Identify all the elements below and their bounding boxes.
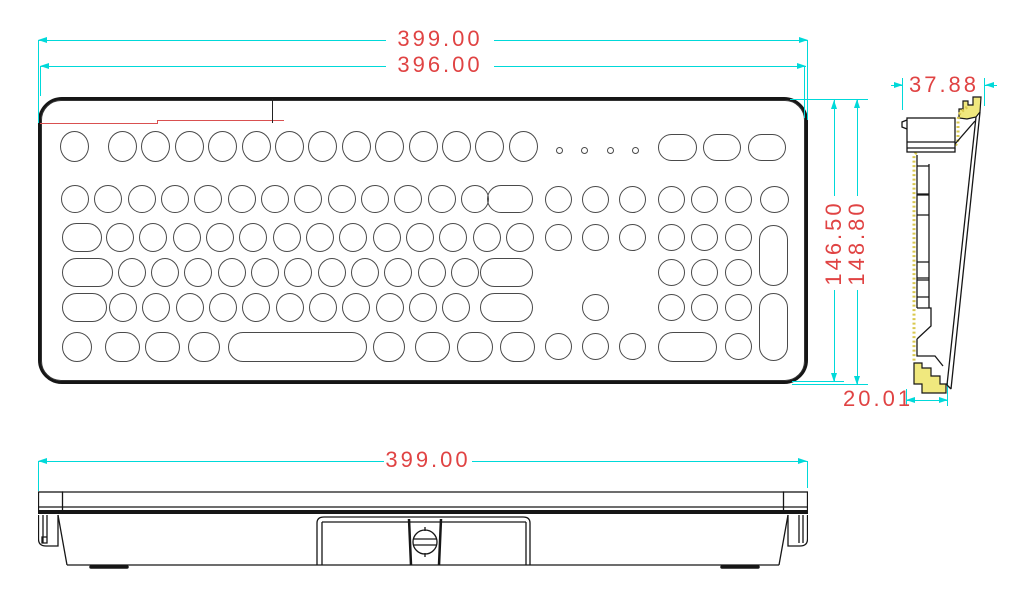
- front-left-bracket: [39, 515, 59, 546]
- key-outline: [691, 259, 718, 286]
- arrowhead: [854, 376, 860, 385]
- arrowhead: [854, 99, 860, 108]
- side-view: [893, 94, 993, 404]
- key-outline: [62, 223, 102, 252]
- section-line-right: [157, 120, 284, 121]
- key-outline: [375, 131, 404, 162]
- key-outline: [409, 293, 437, 322]
- key-outline: [145, 332, 180, 362]
- key-outline: [308, 131, 337, 162]
- key-outline: [473, 223, 501, 252]
- led-indicator-icon: [581, 147, 588, 154]
- key-outline: [619, 224, 646, 251]
- key-outline: [658, 332, 717, 362]
- key-outline: [691, 186, 718, 213]
- key-outline: [442, 131, 471, 162]
- led-indicator-icon: [632, 147, 639, 154]
- key-outline: [760, 186, 789, 213]
- dim-label-height-outer: 148.80: [846, 198, 868, 288]
- key-outline: [209, 293, 237, 322]
- top-view: [38, 97, 808, 384]
- dim-label-height-inner: 146.50: [823, 198, 845, 288]
- key-outline: [725, 333, 752, 360]
- key-outline: [506, 223, 534, 252]
- key-outline: [619, 186, 646, 213]
- front-view: [38, 486, 808, 574]
- key-outline: [439, 223, 467, 252]
- key-outline: [582, 224, 609, 251]
- key-outline: [759, 225, 788, 286]
- key-outline: [294, 185, 322, 213]
- key-outline: [309, 293, 337, 322]
- key-outline: [582, 333, 609, 360]
- key-outline: [418, 258, 446, 287]
- key-outline: [251, 258, 279, 287]
- key-outline: [228, 185, 256, 213]
- witness-line: [807, 40, 808, 120]
- front-top-edges: [38, 492, 808, 507]
- key-outline: [658, 294, 685, 321]
- front-left-cap: [39, 492, 63, 513]
- key-outline: [457, 332, 493, 362]
- arrowhead: [797, 63, 806, 69]
- key-outline: [184, 258, 212, 287]
- arrowhead: [798, 458, 807, 464]
- arrowhead: [38, 37, 47, 43]
- key-outline: [142, 293, 170, 322]
- key-outline: [128, 185, 156, 213]
- key-outline: [480, 293, 533, 322]
- key-outline: [582, 294, 609, 321]
- arrowhead: [985, 82, 994, 88]
- key-layer: [38, 97, 808, 384]
- key-outline: [284, 258, 312, 287]
- key-outline: [342, 293, 370, 322]
- key-outline: [582, 186, 609, 213]
- key-outline: [141, 131, 170, 162]
- gasket-top-hook: [959, 97, 981, 119]
- key-outline: [151, 258, 179, 287]
- key-outline: [415, 332, 450, 362]
- screw-slot: [413, 527, 436, 557]
- arrowhead: [40, 63, 49, 69]
- key-outline: [242, 131, 271, 162]
- key-outline: [318, 258, 346, 287]
- key-outline: [242, 293, 270, 322]
- key-outline: [428, 185, 456, 213]
- key-outline: [658, 259, 685, 286]
- key-outline: [361, 185, 389, 213]
- key-outline: [228, 332, 367, 362]
- witness-line: [804, 66, 805, 118]
- key-outline: [139, 223, 167, 252]
- key-outline: [545, 333, 572, 360]
- key-outline: [475, 131, 504, 162]
- key-outline: [173, 223, 201, 252]
- key-outline: [239, 223, 267, 252]
- key-outline: [339, 223, 367, 252]
- key-outline: [276, 293, 304, 322]
- dimension-line: [857, 290, 858, 385]
- screw-head-icon: [413, 530, 437, 554]
- key-outline: [60, 131, 89, 162]
- front-right-bracket: [788, 515, 808, 546]
- key-outline: [725, 259, 752, 286]
- key-outline: [409, 131, 438, 162]
- dimension-line: [834, 290, 835, 382]
- key-outline: [545, 186, 572, 213]
- drawing-canvas: 399.00 396.00 146.50 148.80 37.88 20.01 …: [0, 0, 1021, 609]
- front-right-cap: [784, 492, 808, 513]
- dimension-line: [472, 461, 808, 462]
- key-outline: [328, 185, 356, 213]
- key-outline: [194, 185, 222, 213]
- key-outline: [500, 332, 535, 362]
- dimension-line: [834, 100, 835, 196]
- key-outline: [62, 258, 113, 287]
- witness-line: [38, 40, 39, 123]
- key-outline: [658, 224, 685, 251]
- arrowhead: [38, 458, 47, 464]
- key-outline: [725, 294, 752, 321]
- led-indicator-icon: [556, 147, 563, 154]
- key-outline: [109, 293, 137, 322]
- key-outline: [545, 224, 572, 251]
- witness-line: [40, 66, 41, 96]
- key-outline: [62, 293, 107, 322]
- key-outline: [62, 332, 92, 362]
- key-outline: [703, 134, 741, 161]
- key-outline: [394, 185, 422, 213]
- key-outline: [373, 332, 405, 362]
- section-line-left: [40, 123, 157, 124]
- key-outline: [105, 332, 140, 362]
- key-outline: [306, 223, 334, 252]
- dimension-line: [40, 66, 386, 67]
- key-outline: [451, 258, 479, 287]
- key-outline: [461, 185, 489, 213]
- key-outline: [206, 223, 234, 252]
- side-outer-edge: [947, 112, 980, 389]
- key-outline: [480, 258, 533, 287]
- key-outline: [619, 333, 646, 360]
- dim-label-top-inner-width: 396.00: [386, 54, 494, 76]
- arrowhead: [831, 100, 837, 109]
- key-outline: [273, 223, 301, 252]
- dimension-line: [494, 66, 806, 67]
- led-indicator-icon: [607, 147, 614, 154]
- key-outline: [406, 223, 434, 252]
- dim-label-top-outer-width: 399.00: [386, 28, 494, 50]
- key-outline: [176, 293, 204, 322]
- key-outline: [175, 131, 204, 162]
- key-outline: [509, 131, 538, 162]
- arrowhead: [831, 373, 837, 382]
- key-outline: [342, 131, 371, 162]
- side-top-block: [907, 118, 955, 152]
- key-outline: [94, 185, 122, 213]
- front-bezel-line: [38, 510, 808, 514]
- dimension-line: [38, 40, 386, 41]
- dimension-line: [857, 99, 858, 196]
- key-outline: [725, 186, 752, 213]
- key-outline: [748, 134, 786, 161]
- key-outline: [106, 223, 134, 252]
- gasket-bottom-hook: [914, 363, 946, 393]
- key-outline: [261, 185, 289, 213]
- arrowhead: [799, 37, 808, 43]
- key-outline: [161, 185, 189, 213]
- key-outline: [218, 258, 246, 287]
- key-outline: [118, 258, 146, 287]
- front-center-recess: [317, 517, 530, 565]
- key-outline: [61, 185, 89, 213]
- key-outline: [442, 293, 470, 322]
- key-outline: [759, 293, 788, 361]
- key-outline: [351, 258, 379, 287]
- key-outline: [373, 223, 401, 252]
- key-outline: [487, 185, 533, 213]
- dim-label-front-width: 399.00: [384, 449, 472, 471]
- key-outline: [658, 134, 697, 161]
- dimension-line: [494, 40, 808, 41]
- key-outline: [658, 186, 685, 213]
- dim-label-side-top: 37.88: [902, 74, 986, 96]
- side-interior-ribs: [917, 155, 943, 366]
- key-outline: [384, 258, 412, 287]
- front-screw-channel: [409, 519, 441, 565]
- key-outline: [275, 131, 304, 162]
- key-outline: [691, 294, 718, 321]
- key-outline: [725, 224, 752, 251]
- key-outline: [691, 224, 718, 251]
- key-outline: [208, 131, 237, 162]
- dimension-line: [38, 461, 384, 462]
- section-tick: [272, 99, 273, 123]
- key-outline: [376, 293, 404, 322]
- key-outline: [188, 332, 220, 362]
- key-outline: [108, 131, 137, 162]
- witness-line: [807, 461, 808, 488]
